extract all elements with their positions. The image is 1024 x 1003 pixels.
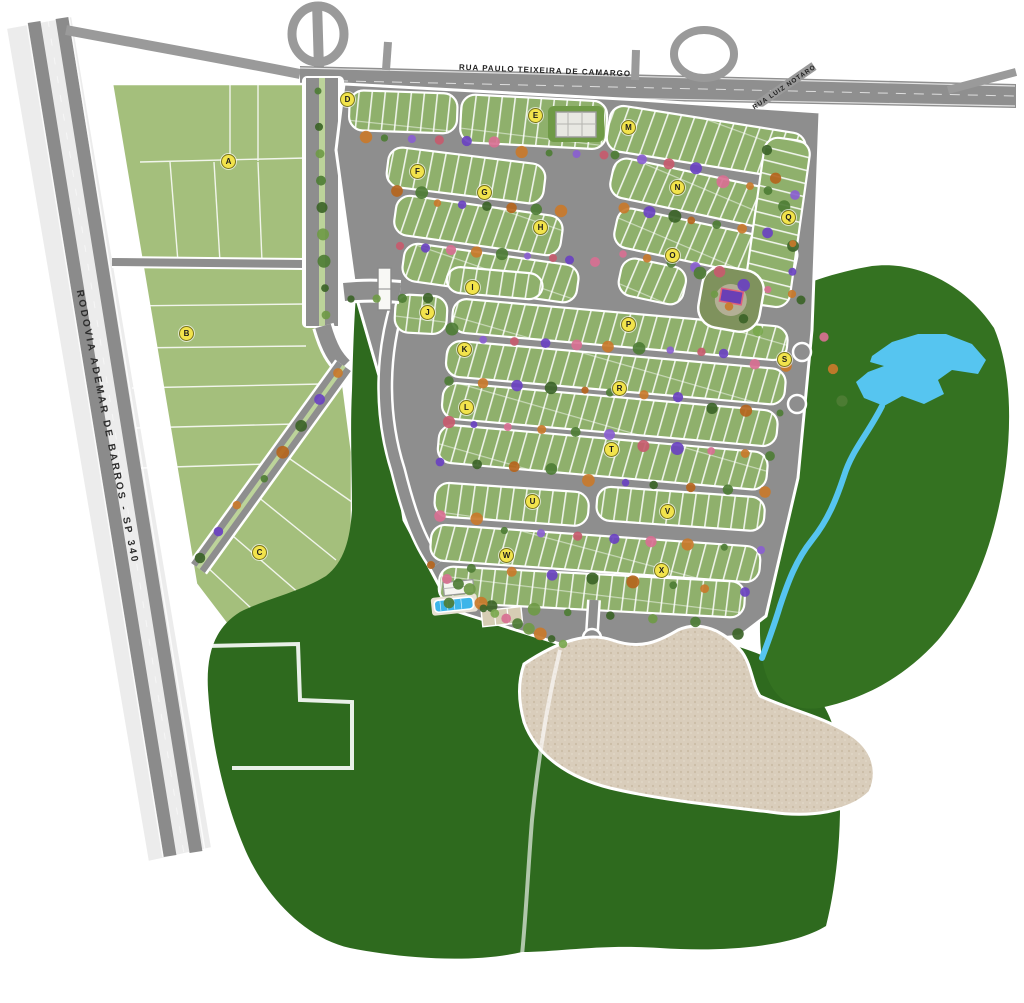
play-structure — [719, 288, 743, 305]
block-badge-q: Q — [781, 210, 796, 225]
block-badge-g: G — [477, 185, 492, 200]
block-badge-i: I — [465, 280, 480, 295]
block-badge-p: P — [621, 317, 636, 332]
block-badge-r: R — [612, 381, 627, 396]
block-badge-u: U — [525, 494, 540, 509]
block-badge-e: E — [528, 108, 543, 123]
block-badge-w: W — [499, 548, 514, 563]
block-badge-s: S — [777, 352, 792, 367]
block-badge-j: J — [420, 305, 435, 320]
block-badge-f: F — [410, 164, 425, 179]
block-badge-k: K — [457, 342, 472, 357]
block-badge-c: C — [252, 545, 267, 560]
block-badge-h: H — [533, 220, 548, 235]
site-plan-drawing — [0, 0, 1024, 1003]
ramp-loop — [674, 30, 734, 78]
block-badge-b: B — [179, 326, 194, 341]
block-badge-a: A — [221, 154, 236, 169]
internal-road — [112, 262, 306, 264]
block-badge-d: D — [340, 92, 355, 107]
block-badge-t: T — [604, 442, 619, 457]
block-badge-l: L — [459, 400, 474, 415]
block-badge-x: X — [654, 563, 669, 578]
block-badge-n: N — [670, 180, 685, 195]
master-plan-map: RUA PAULO TEIXEIRA DE CAMARGO RODOVIA AD… — [0, 0, 1024, 1003]
block-badge-v: V — [660, 504, 675, 519]
block-badge-o: O — [665, 248, 680, 263]
block-badge-m: M — [621, 120, 636, 135]
commercial-building — [548, 106, 604, 142]
